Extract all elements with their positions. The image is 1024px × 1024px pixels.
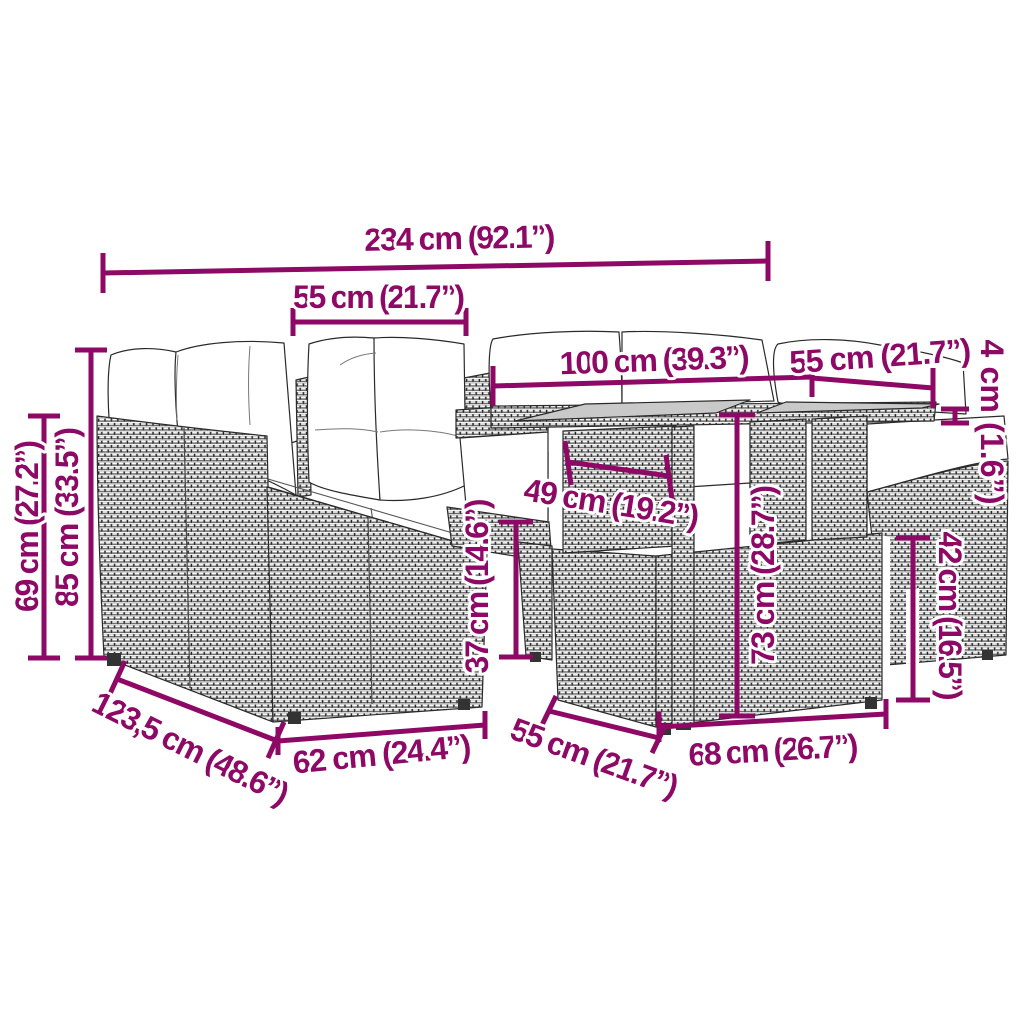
svg-text:37 cm (14.6”): 37 cm (14.6”): [459, 499, 495, 674]
svg-text:4 cm (1.6”): 4 cm (1.6”): [974, 340, 1010, 505]
svg-text:69 cm (27.2”): 69 cm (27.2”): [9, 440, 45, 612]
svg-text:85 cm (33.5”): 85 cm (33.5”): [49, 427, 85, 607]
svg-text:42 cm (16.5”): 42 cm (16.5”): [932, 532, 968, 701]
svg-text:73 cm (28.7”): 73 cm (28.7”): [745, 485, 781, 665]
svg-text:234 cm (92.1”): 234 cm (92.1”): [364, 218, 556, 258]
svg-text:100 cm (39.3”): 100 cm (39.3”): [559, 339, 750, 382]
svg-text:55 cm (21.7”): 55 cm (21.7”): [293, 279, 465, 315]
